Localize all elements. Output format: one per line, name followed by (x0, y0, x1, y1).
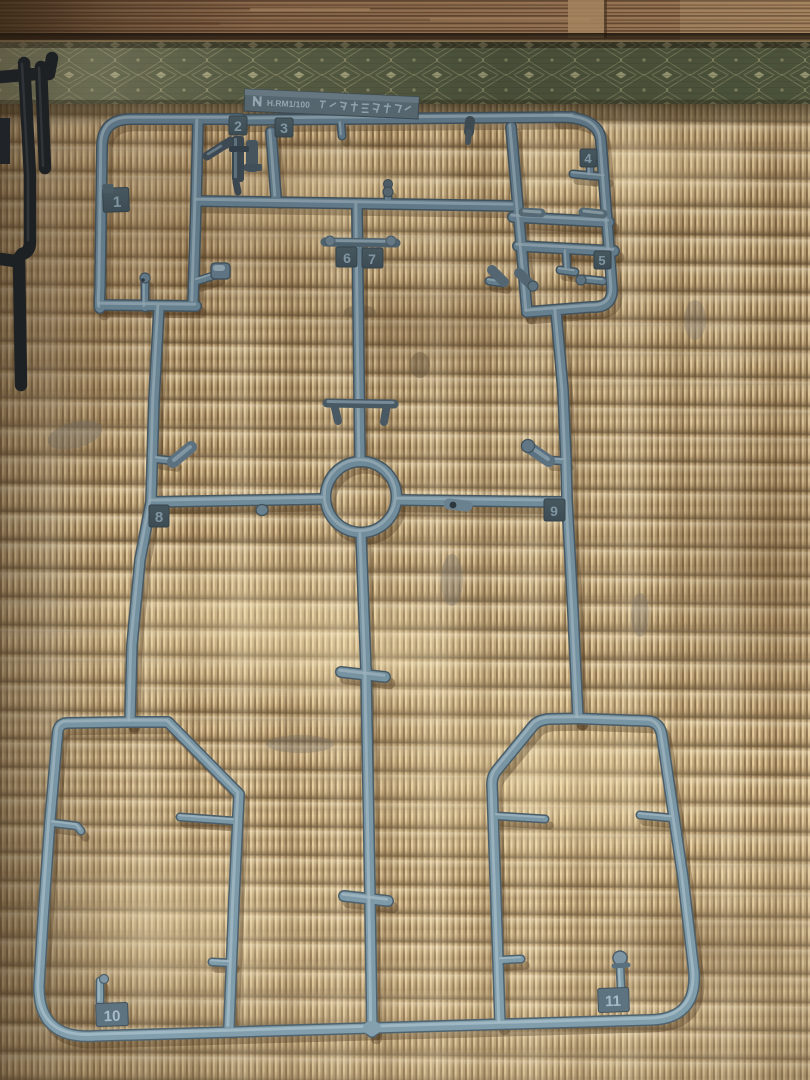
svg-text:10: 10 (103, 1008, 120, 1026)
svg-text:7: 7 (368, 251, 376, 267)
svg-text:9: 9 (550, 503, 558, 519)
svg-text:6: 6 (343, 250, 351, 266)
svg-text:11: 11 (605, 993, 621, 1011)
svg-text:5: 5 (598, 253, 605, 268)
svg-text:3: 3 (280, 120, 288, 136)
svg-text:8: 8 (155, 509, 163, 526)
svg-text:H.RM1/100: H.RM1/100 (267, 98, 311, 110)
svg-text:2: 2 (234, 118, 242, 134)
svg-text:4: 4 (584, 151, 592, 166)
svg-text:1: 1 (113, 194, 122, 211)
